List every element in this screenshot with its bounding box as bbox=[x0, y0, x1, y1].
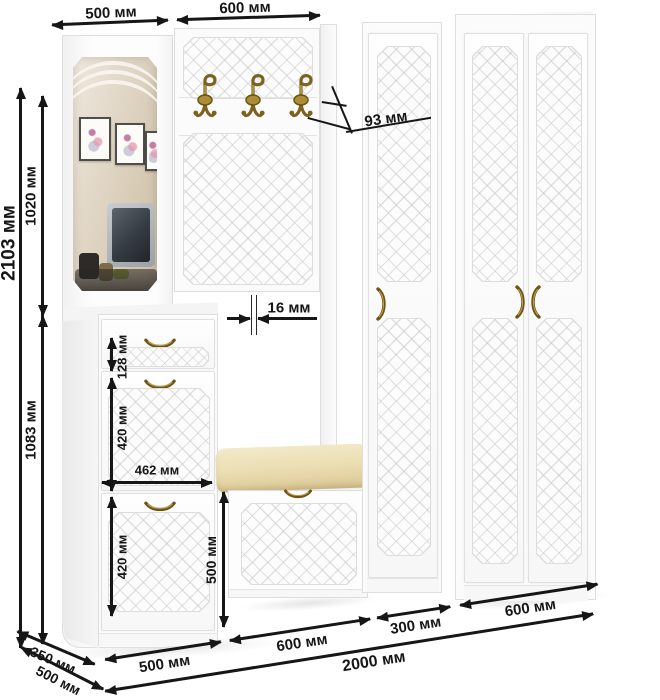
dimension-arrow bbox=[258, 317, 317, 320]
dimension-arrow bbox=[110, 338, 113, 371]
shoe-unit-side bbox=[62, 312, 99, 648]
picture-frame bbox=[79, 117, 111, 161]
door-handle-icon bbox=[530, 284, 542, 325]
picture-art bbox=[119, 127, 141, 161]
picture-art bbox=[149, 135, 157, 167]
coat-hook-icon bbox=[192, 72, 218, 132]
quilt-panel bbox=[377, 46, 431, 282]
quilt-panel bbox=[472, 46, 518, 282]
picture-frame bbox=[115, 123, 145, 165]
shelf-clutter bbox=[75, 269, 157, 291]
dimension-label: 420 мм bbox=[116, 535, 129, 580]
bench-shoe-box bbox=[228, 490, 368, 598]
dimension-label: 500 мм bbox=[85, 4, 137, 21]
dimension-label: 16 мм bbox=[267, 301, 310, 316]
dimension-label: 420 мм bbox=[116, 406, 129, 451]
tv-reflection bbox=[107, 203, 155, 267]
dimension-arrow bbox=[110, 497, 113, 616]
coat-hook-icon bbox=[240, 72, 266, 132]
dimension-label: 2103 мм bbox=[0, 205, 19, 281]
dimension-arrow bbox=[222, 492, 225, 627]
double-wardrobe-door-right bbox=[528, 33, 588, 583]
dimension-label: 1083 мм bbox=[24, 400, 39, 460]
dimension-label: 1020 мм bbox=[24, 166, 39, 226]
plinth bbox=[367, 578, 439, 592]
panel-edge-tick bbox=[251, 295, 252, 335]
quilt-panel bbox=[241, 503, 357, 585]
plinth bbox=[229, 589, 367, 597]
quilt-panel bbox=[536, 318, 582, 564]
double-wardrobe-door-left bbox=[464, 33, 524, 583]
door-handle-icon bbox=[375, 286, 387, 327]
dimension-arrow bbox=[227, 317, 250, 320]
dimension-label: 600 мм bbox=[275, 632, 328, 655]
partition-panel bbox=[320, 24, 337, 450]
dimension-label: 462 мм bbox=[135, 464, 180, 477]
coat-rack-panel bbox=[174, 28, 320, 292]
diagram: 500 мм 600 мм 2103 мм 1020 мм 1083 мм 93… bbox=[0, 0, 660, 700]
picture-art bbox=[83, 121, 107, 157]
dimension-arrow bbox=[102, 481, 212, 484]
coat-hook-icon bbox=[288, 72, 314, 132]
picture-frame bbox=[145, 131, 157, 171]
dimension-label: 128 мм bbox=[116, 335, 129, 380]
quilt-panel-lower bbox=[183, 133, 313, 285]
dimension-label: 600 мм bbox=[219, 0, 271, 16]
door-handle-icon bbox=[283, 486, 313, 504]
tv-screen bbox=[112, 208, 150, 262]
mirror bbox=[73, 57, 157, 291]
quilt-panel bbox=[536, 46, 582, 282]
dimension-arrow bbox=[41, 316, 44, 644]
dimension-label: 500 мм bbox=[204, 536, 218, 584]
double-wardrobe bbox=[455, 14, 596, 600]
door-handle-icon bbox=[514, 284, 526, 325]
dimension-arrow bbox=[110, 378, 113, 491]
dimension-arrow bbox=[41, 96, 44, 316]
dimension-label: 300 мм bbox=[389, 614, 442, 637]
quilt-panel bbox=[472, 318, 518, 564]
quilt-panel bbox=[377, 318, 431, 556]
